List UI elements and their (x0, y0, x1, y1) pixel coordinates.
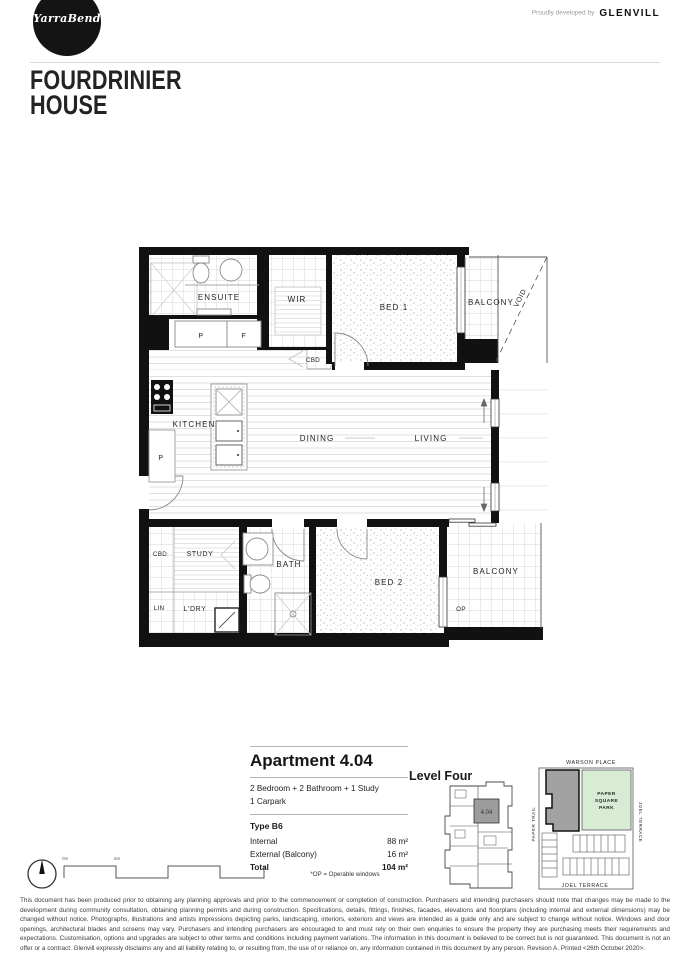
floorplan-drawing: ENSUITE WIR BED 1 BALCONY VOID CBD P F K… (139, 247, 551, 649)
room-label-bed2: BED 2 (375, 578, 404, 587)
room-label-bed1: BED 1 (380, 303, 409, 312)
apartment-title: Apartment 4.04 (250, 751, 408, 771)
room-label-pantry-upper: P (198, 333, 203, 340)
developer-credit: Proudly developed byGLENVILL (532, 8, 660, 19)
room-label-balcony-top: BALCONY (468, 298, 514, 307)
floorplate-outline (445, 782, 512, 888)
room-label-kitchen: KITCHEN (173, 420, 216, 429)
fourdrinier-house-building (546, 770, 579, 831)
developed-by-label: Proudly developed by (532, 10, 595, 17)
room-label-dining: DINING (300, 434, 335, 443)
street-label-warson-place: WARSON PLACE (566, 760, 616, 766)
operable-windows-note: *OP = Operable windows (286, 871, 404, 878)
townhouse-rows (542, 833, 629, 877)
room-label-bath: BATH (276, 560, 301, 569)
room-label-living: LIVING (415, 434, 448, 443)
room-label-cbd-study: CBD (153, 551, 167, 558)
apartment-configuration: 2 Bedroom + 2 Bathroom + 1 Study (250, 783, 408, 796)
legal-disclaimer: This document has been produced prior to… (20, 896, 670, 954)
room-label-lin: LIN (154, 605, 165, 612)
park-label-line3: PARK (599, 805, 614, 811)
street-label-joel-terrace-right: JOEL TERRACE (638, 802, 643, 842)
room-label-laundry: L'DRY (184, 606, 207, 613)
street-label-paper-trail: PAPER TRAIL (531, 807, 536, 842)
room-label-wir: WIR (288, 295, 307, 304)
apartment-type: Type B6 (250, 821, 408, 831)
info-divider-top (250, 746, 408, 747)
room-label-balcony-bottom: BALCONY (473, 567, 519, 576)
developer-name: GLENVILL (599, 8, 660, 19)
park-label-line1: PAPER (597, 791, 616, 797)
info-divider-2 (250, 814, 408, 815)
north-compass-icon (22, 855, 62, 895)
level-floorplate-diagram: 4.04 (428, 778, 520, 892)
apartment-info: Apartment 4.04 2 Bedroom + 2 Bathroom + … (250, 746, 408, 875)
room-label-fridge: F (242, 333, 247, 340)
location-map: WARSON PLACE PAPER SQUARE PARK PAPER TRA… (531, 754, 646, 894)
highlighted-unit-label: 4.04 (481, 810, 493, 816)
void-dashed-line (496, 257, 547, 361)
park-label-line2: SQUARE (595, 798, 619, 804)
area-value-external: 16 m² (387, 849, 408, 862)
header-divider (30, 62, 660, 63)
info-divider-1 (250, 777, 408, 778)
yarrabend-logo: YarraBend (33, 0, 101, 56)
scale-label-start: 0m (62, 856, 69, 861)
building-title: FOURDRINIER HOUSE (30, 68, 182, 119)
apartment-carpark: 1 Carpark (250, 796, 408, 809)
brochure-page: YarraBend Proudly developed byGLENVILL F… (0, 0, 690, 955)
room-label-op: OP (456, 606, 466, 613)
street-label-joel-terrace-bottom: JOEL TERRACE (562, 883, 609, 889)
room-label-pantry-lower: P (158, 455, 163, 462)
room-label-void: VOID (513, 288, 528, 309)
yarrabend-logo-text: YarraBend (33, 12, 101, 25)
area-value-internal: 88 m² (387, 836, 408, 849)
room-label-ensuite: ENSUITE (198, 293, 240, 302)
area-row-external: External (Balcony) 16 m² (250, 849, 408, 862)
scale-bar: 0m 5m (58, 850, 268, 888)
room-label-study: STUDY (187, 551, 214, 558)
scale-label-mid: 5m (114, 856, 121, 861)
room-label-cbd-hall: CBD (306, 357, 320, 364)
area-row-internal: Internal 88 m² (250, 836, 408, 849)
building-title-line2: HOUSE (30, 93, 182, 118)
area-label-internal: Internal (250, 836, 277, 849)
